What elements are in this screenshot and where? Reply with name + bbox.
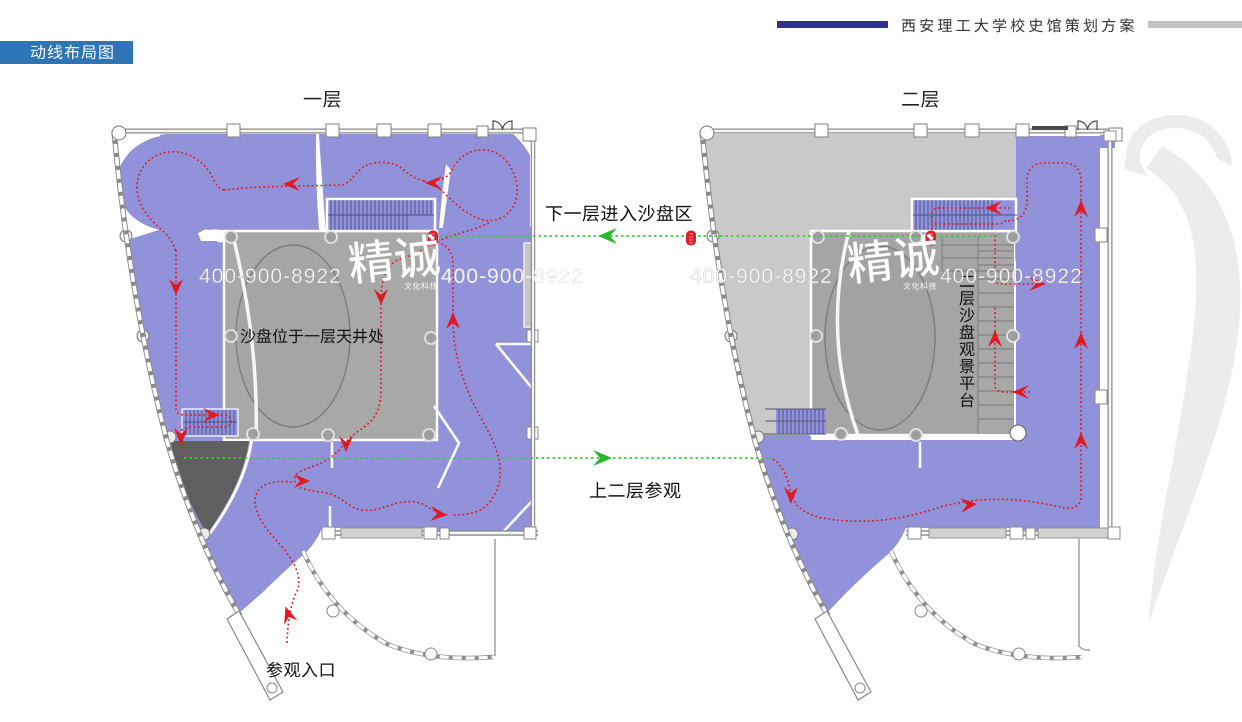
svg-text:400-900-8922: 400-900-8922	[441, 265, 584, 288]
svg-text:400-900-8922: 400-900-8922	[940, 265, 1083, 288]
svg-text:400-900-8922: 400-900-8922	[690, 265, 833, 288]
svg-text:400-900-8922: 400-900-8922	[199, 265, 342, 288]
